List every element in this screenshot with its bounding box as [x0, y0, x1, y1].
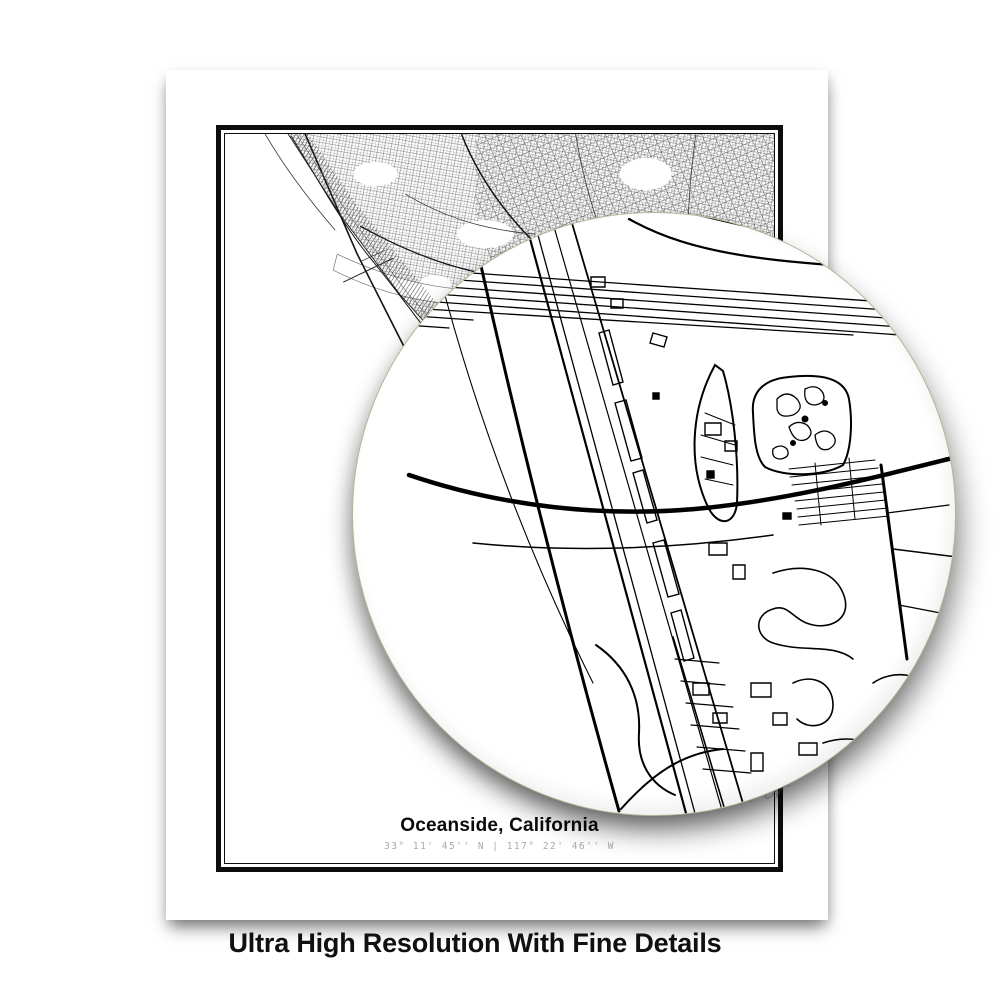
- east-road: [881, 465, 956, 659]
- cross-avenue: [409, 457, 956, 549]
- magnifier-lens: [352, 212, 956, 816]
- building-blocks: [591, 277, 817, 771]
- beach-strand-road: [439, 273, 593, 683]
- caption-text: Ultra High Resolution With Fine Details: [150, 928, 800, 959]
- product-mockup: Oceanside, California 33° 11' 45'' N | 1…: [0, 0, 1000, 1000]
- suburb-streets: [759, 568, 936, 807]
- lens-map-svg: [353, 213, 956, 816]
- map-title: Oceanside, California: [216, 815, 783, 837]
- leaf-lot: [695, 365, 738, 521]
- map-coordinates: 33° 11' 45'' N | 117° 22' 46'' W: [216, 841, 783, 852]
- railroad-corridor: [471, 213, 747, 816]
- harbor-marina: [753, 376, 851, 474]
- freeway: [629, 213, 956, 289]
- parallel-avenues: [373, 269, 956, 339]
